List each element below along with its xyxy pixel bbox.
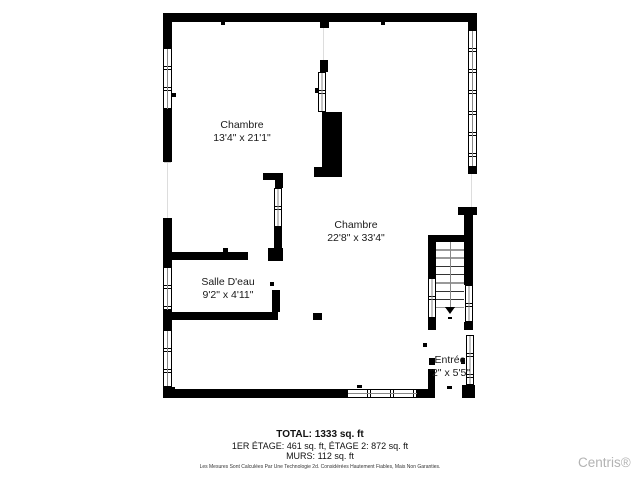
window-symbol (318, 72, 326, 112)
wall-tick (270, 282, 274, 286)
wall-tick (423, 343, 427, 347)
wall-tick (172, 93, 176, 97)
stair-center-line (450, 242, 451, 308)
chimney-foot (314, 167, 322, 177)
wall-bottom-segment (163, 389, 347, 398)
room-name: Entrée (430, 354, 470, 367)
window-symbol (465, 285, 473, 322)
wall-left-segment (163, 13, 172, 48)
faint-wall-line (167, 162, 168, 218)
room-label-chambre-2: Chambre 22'8" x 33'4" (327, 219, 385, 245)
room-label-entree: Entrée '2" x 5'5" (430, 354, 470, 380)
window-symbol (428, 278, 436, 318)
room-dims: 22'8" x 33'4" (327, 232, 385, 245)
wall-salle-top (170, 252, 248, 260)
room-name: Chambre (213, 119, 271, 132)
walls-area-text: MURS: 112 sq. ft (0, 451, 640, 461)
wall-right-stub (468, 167, 477, 174)
wall-interior-junction (268, 248, 283, 261)
wall-stair-left-stub (428, 318, 436, 330)
wall-right-cap (458, 207, 477, 215)
wall-top (163, 13, 477, 22)
stair-mark (448, 317, 452, 319)
room-dims: 13'4" x 21'1" (213, 132, 271, 145)
room-dims: '2" x 5'5" (430, 367, 470, 380)
chimney-block (322, 112, 342, 177)
door-symbol (274, 188, 282, 227)
window-symbol (468, 30, 477, 167)
wall-tick (223, 248, 228, 252)
centris-watermark: Centris® (578, 455, 631, 470)
disclaimer-text: Les Mesures Sont Calculées Par Une Techn… (0, 464, 640, 470)
floor-plan-page: Chambre 13'4" x 21'1" Chambre 22'8" x 33… (0, 0, 640, 480)
window-symbol (347, 389, 418, 398)
wall-stair-right (464, 235, 473, 285)
wall-tick (221, 22, 225, 25)
room-label-chambre-1: Chambre 13'4" x 21'1" (213, 119, 271, 145)
wall-stub (320, 22, 329, 28)
wall-stub (313, 313, 322, 320)
wall-tick (447, 386, 452, 389)
floor-areas-text: 1ER ÉTAGE: 461 sq. ft, ÉTAGE 2: 872 sq. … (0, 441, 640, 451)
wall-tick (315, 88, 319, 93)
window-symbol (163, 330, 172, 387)
wall-stair-left (428, 242, 436, 278)
window-symbol (163, 267, 172, 311)
room-dims: 9'2" x 4'11" (201, 289, 254, 302)
room-label-salle-deau: Salle D'eau 9'2" x 4'11" (201, 276, 254, 302)
window-symbol (163, 48, 172, 110)
room-name: Chambre (327, 219, 385, 232)
wall-interior-segment (275, 173, 283, 188)
wall-salle-right (272, 290, 280, 312)
wall-stub (320, 60, 328, 72)
wall-tick (357, 385, 362, 388)
wall-corner-bottom-right (462, 385, 475, 398)
wall-right-segment (468, 13, 477, 30)
total-area-text: TOTAL: 1333 sq. ft (0, 429, 640, 440)
wall-salle-bottom (163, 312, 278, 320)
wall-tick (381, 22, 385, 25)
faint-wall-line (323, 28, 324, 60)
wall-stair-right-stub (464, 322, 473, 330)
stair-direction-arrow (445, 307, 455, 314)
wall-left-segment (163, 110, 172, 162)
faint-wall-line (471, 174, 472, 207)
room-name: Salle D'eau (201, 276, 254, 289)
